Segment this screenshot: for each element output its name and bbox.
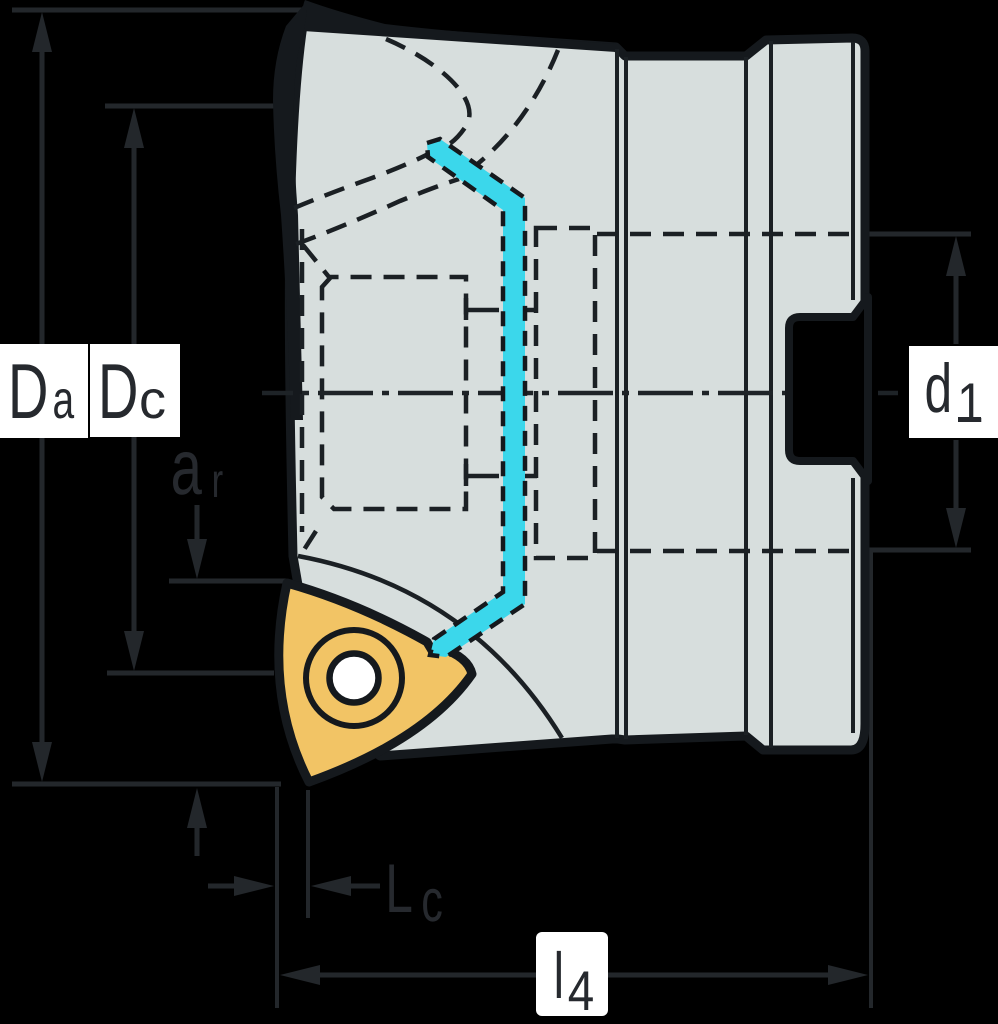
svg-text:1: 1 [957,371,983,434]
svg-text:D: D [8,347,49,435]
svg-text:4: 4 [568,959,594,1022]
svg-text:a: a [53,370,75,430]
svg-text:L: L [385,850,413,927]
svg-text:D: D [98,347,139,435]
svg-text:r: r [212,455,224,508]
svg-text:c: c [421,867,443,934]
svg-text:l: l [554,939,564,1012]
svg-text:a: a [171,423,203,511]
svg-text:c: c [139,370,166,430]
svg-text:d: d [924,350,952,427]
